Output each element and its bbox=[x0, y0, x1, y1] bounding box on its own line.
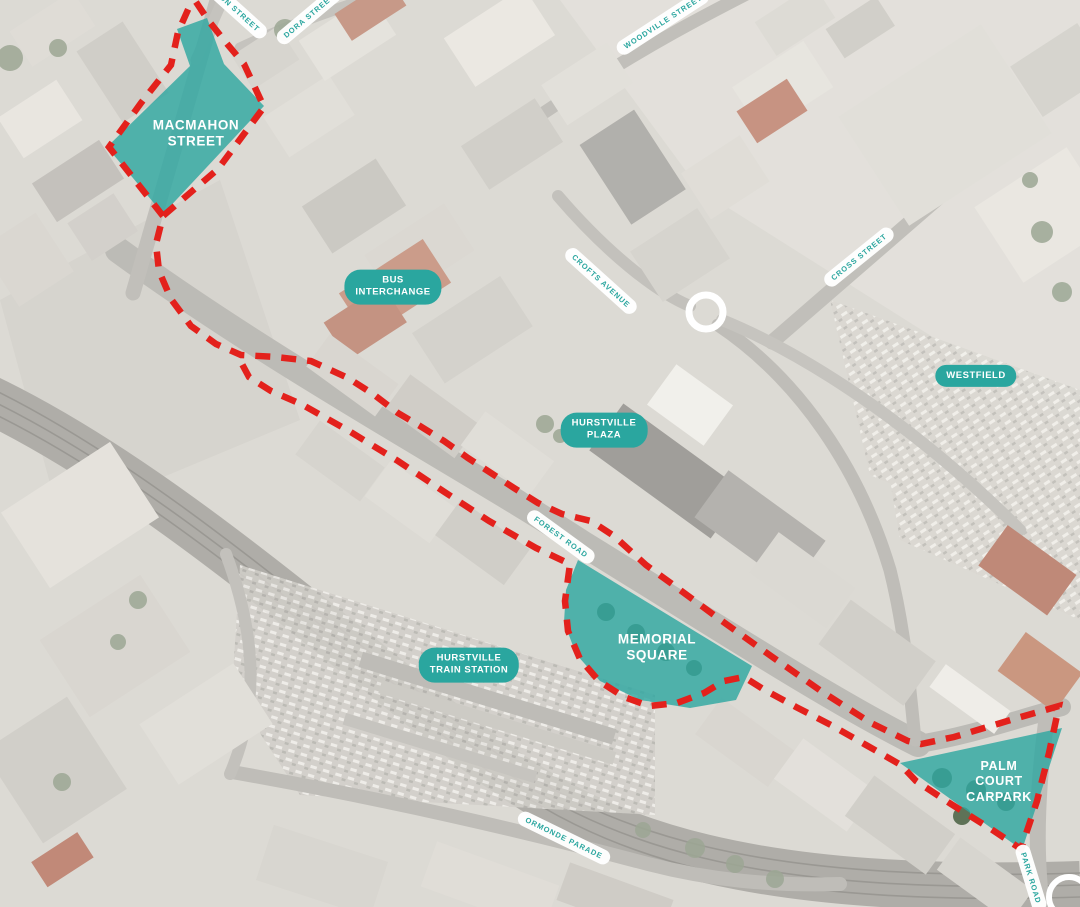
pill-line: WESTFIELD bbox=[946, 370, 1005, 382]
site-label-line: CARPARK bbox=[966, 790, 1032, 805]
site-label-line: SQUARE bbox=[618, 648, 696, 664]
pill-line: PLAZA bbox=[572, 430, 637, 442]
site-label-line: COURT bbox=[966, 774, 1032, 789]
site-label-line: MACMAHON bbox=[153, 118, 240, 134]
pill-line: BUS bbox=[355, 275, 430, 287]
palm-court-carpark-site-label: PALM COURT CARPARK bbox=[966, 759, 1032, 805]
westfield-pill: WESTFIELD bbox=[935, 365, 1016, 387]
bus-interchange-pill: BUS INTERCHANGE bbox=[344, 270, 441, 305]
site-label-line: PALM bbox=[966, 759, 1032, 774]
pill-line: INTERCHANGE bbox=[355, 287, 430, 299]
site-label-line: MEMORIAL bbox=[618, 632, 696, 648]
site-label-line: STREET bbox=[153, 134, 240, 150]
hurstville-train-station-pill: HURSTVILLE TRAIN STATION bbox=[419, 648, 519, 683]
aerial-map: MACMAHON STREET MEMORIAL SQUARE PALM COU… bbox=[0, 0, 1080, 907]
macmahon-street-site-label: MACMAHON STREET bbox=[153, 118, 240, 151]
pill-line: HURSTVILLE bbox=[430, 653, 508, 665]
pill-line: HURSTVILLE bbox=[572, 418, 637, 430]
pill-line: TRAIN STATION bbox=[430, 665, 508, 677]
hurstville-plaza-pill: HURSTVILLE PLAZA bbox=[561, 413, 648, 448]
memorial-square-site-label: MEMORIAL SQUARE bbox=[618, 632, 696, 665]
